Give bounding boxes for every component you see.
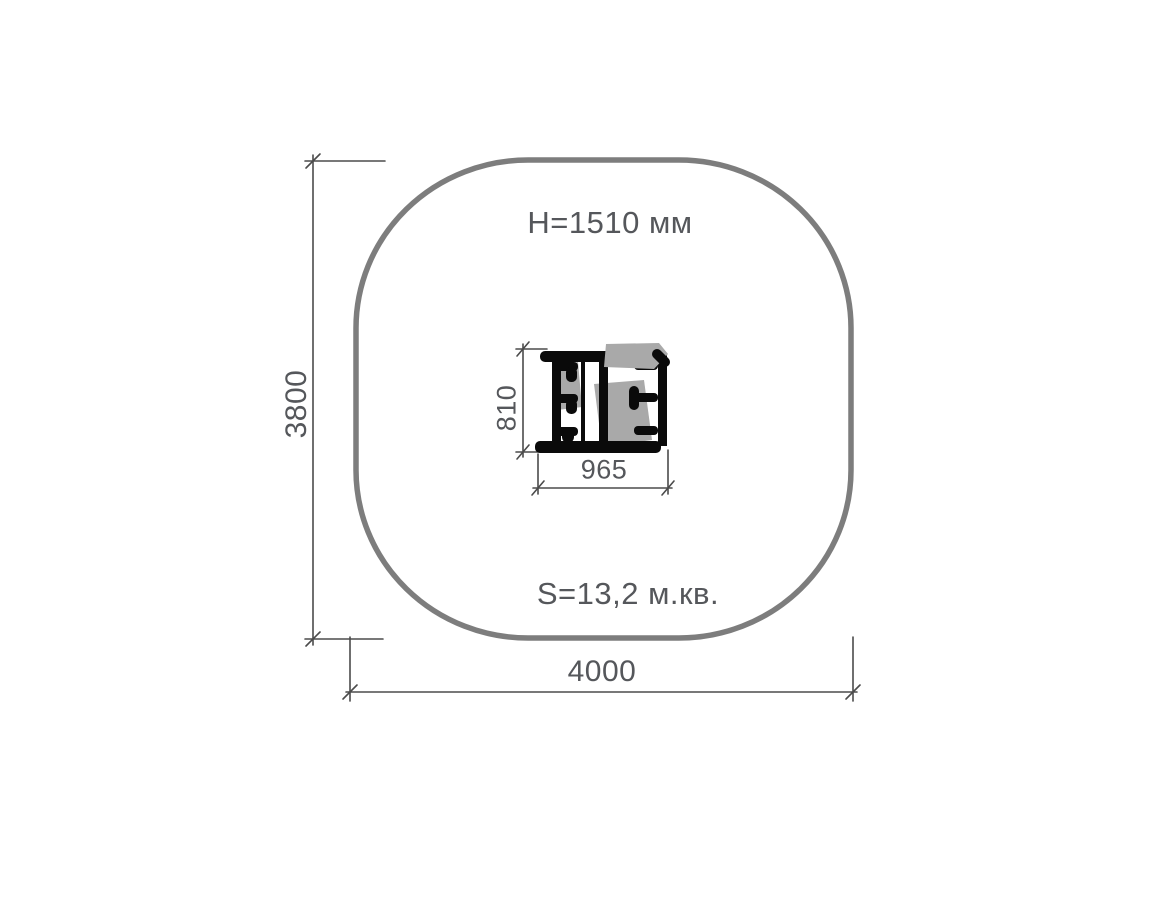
plan-drawing-svg: [0, 0, 1172, 902]
equipment-post: [581, 357, 585, 444]
equipment-top-view: [535, 343, 668, 453]
dimension-4000-value: 4000: [568, 655, 637, 689]
equipment-knob: [566, 399, 577, 414]
area-annotation: S=13,2 м.кв.: [537, 576, 719, 612]
equipment-right-spine: [658, 354, 667, 446]
equipment-rail-end: [657, 354, 665, 362]
equipment-post: [599, 355, 608, 444]
dimension-810-value: 810: [492, 385, 523, 432]
technical-drawing-canvas: H=1510 мм S=13,2 м.кв. 3800 4000 810 965: [0, 0, 1172, 902]
equipment-knob: [562, 428, 574, 443]
equipment-right-arm: [634, 426, 658, 435]
height-annotation: H=1510 мм: [527, 205, 692, 241]
equipment-knob: [629, 386, 639, 410]
dimension-3800-value: 3800: [280, 370, 314, 439]
dimension-965-value: 965: [581, 455, 628, 486]
equipment-knob: [566, 367, 577, 382]
dimension-3800-lines: [305, 154, 385, 646]
